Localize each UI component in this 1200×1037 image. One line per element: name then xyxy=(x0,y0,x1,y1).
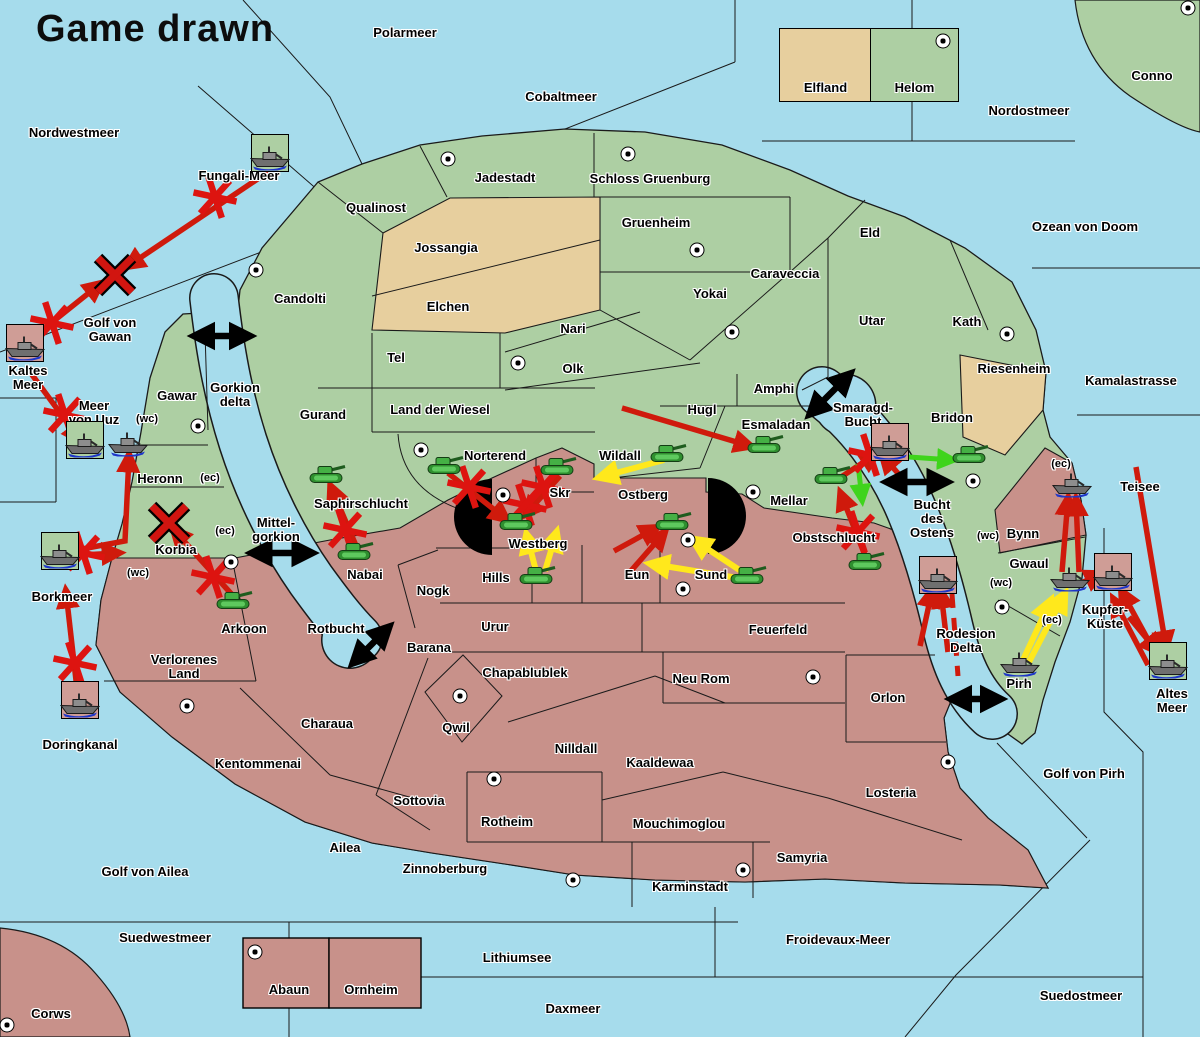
ship-icon xyxy=(1147,653,1189,679)
supply-center-dot xyxy=(690,243,705,258)
army-saphirschlucht[interactable] xyxy=(308,463,346,492)
supply-center-dot xyxy=(966,474,981,489)
army-obstschlucht[interactable] xyxy=(847,550,885,579)
tank-icon xyxy=(336,540,374,564)
supply-center-dot xyxy=(806,670,821,685)
ship-icon xyxy=(249,145,291,171)
supply-center-dot xyxy=(936,34,951,49)
tank-icon xyxy=(649,442,687,466)
tank-icon xyxy=(951,443,989,467)
army-wildall[interactable] xyxy=(649,442,687,471)
legend-entry-elfland: Elfland xyxy=(779,28,872,102)
fleet-heronn-wc[interactable] xyxy=(107,431,149,462)
tank-icon xyxy=(847,550,885,574)
army-ostberg-eun[interactable] xyxy=(654,510,692,539)
fleet-fungali-meer[interactable] xyxy=(249,145,291,176)
ship-icon xyxy=(1092,564,1134,590)
supply-center-dot xyxy=(566,873,581,888)
fleet-bucht-des-ostens[interactable] xyxy=(917,567,959,598)
fleet-altes-meer[interactable] xyxy=(1147,653,1189,684)
supply-center-dot xyxy=(453,689,468,704)
supply-center-dot xyxy=(746,485,761,500)
fleet-doringkanal[interactable] xyxy=(59,692,101,723)
ship-icon xyxy=(39,543,81,569)
ship-icon xyxy=(4,335,46,361)
ship-icon xyxy=(1049,566,1091,592)
supply-center-dot xyxy=(736,863,751,878)
tank-icon xyxy=(498,510,536,534)
tank-icon xyxy=(426,454,464,478)
tank-icon xyxy=(729,564,767,588)
supply-center-dot xyxy=(621,147,636,162)
fleet-smaragd-bucht[interactable] xyxy=(869,434,911,465)
legend-label: Helom xyxy=(895,81,935,95)
supply-center-dot xyxy=(511,356,526,371)
supply-center-dot xyxy=(191,419,206,434)
supply-center-dot xyxy=(725,325,740,340)
army-arkoon[interactable] xyxy=(215,589,253,618)
map-canvas xyxy=(0,0,1200,1037)
ship-icon xyxy=(869,434,911,460)
fleet-gwaul[interactable] xyxy=(1049,566,1091,597)
region-ornheim-box xyxy=(329,938,421,1008)
supply-center-dot xyxy=(1181,1,1196,16)
legend-label: Elfland xyxy=(804,81,847,95)
army-norterend[interactable] xyxy=(426,454,464,483)
supply-center-dot xyxy=(676,582,691,597)
ship-icon xyxy=(64,432,106,458)
supply-center-dot xyxy=(248,945,263,960)
supply-center-dot xyxy=(249,263,264,278)
supply-center-dot xyxy=(496,488,511,503)
army-bridon[interactable] xyxy=(951,443,989,472)
ship-icon xyxy=(59,692,101,718)
supply-center-dot xyxy=(1000,327,1015,342)
army-skr[interactable] xyxy=(539,455,577,484)
tank-icon xyxy=(539,455,577,479)
army-sund[interactable] xyxy=(729,564,767,593)
tank-icon xyxy=(746,433,784,457)
fleet-meer-von-uuz[interactable] xyxy=(64,432,106,463)
army-esmaladan[interactable] xyxy=(746,433,784,462)
supply-center-dot xyxy=(180,699,195,714)
ship-icon xyxy=(999,651,1041,677)
tank-icon xyxy=(654,510,692,534)
fleet-kupfer-k-ste[interactable] xyxy=(1092,564,1134,595)
tank-icon xyxy=(308,463,346,487)
army-westberg[interactable] xyxy=(498,510,536,539)
tank-icon xyxy=(813,464,851,488)
supply-center-dot xyxy=(441,152,456,167)
fleet-borkmeer[interactable] xyxy=(39,543,81,574)
supply-center-dot xyxy=(487,772,502,787)
fleet-pirh[interactable] xyxy=(999,651,1041,682)
tank-icon xyxy=(215,589,253,613)
game-status-title: Game drawn xyxy=(36,8,274,51)
army-nabai[interactable] xyxy=(336,540,374,569)
tank-icon xyxy=(518,564,556,588)
army-hills[interactable] xyxy=(518,564,556,593)
game-map[interactable]: Game drawn ElflandHelom PolarmeerNordwes… xyxy=(0,0,1200,1037)
supply-center-dot xyxy=(0,1018,15,1033)
army-mellar[interactable] xyxy=(813,464,851,493)
ship-icon xyxy=(107,431,149,457)
supply-center-dot xyxy=(224,555,239,570)
supply-center-dot xyxy=(995,600,1010,615)
fleet-bynn-ec[interactable] xyxy=(1051,472,1093,503)
ship-icon xyxy=(917,567,959,593)
fleet-kaltes-meer[interactable] xyxy=(4,335,46,366)
supply-center-dot xyxy=(941,755,956,770)
ship-icon xyxy=(1051,472,1093,498)
red-order-arrow xyxy=(1076,500,1079,572)
